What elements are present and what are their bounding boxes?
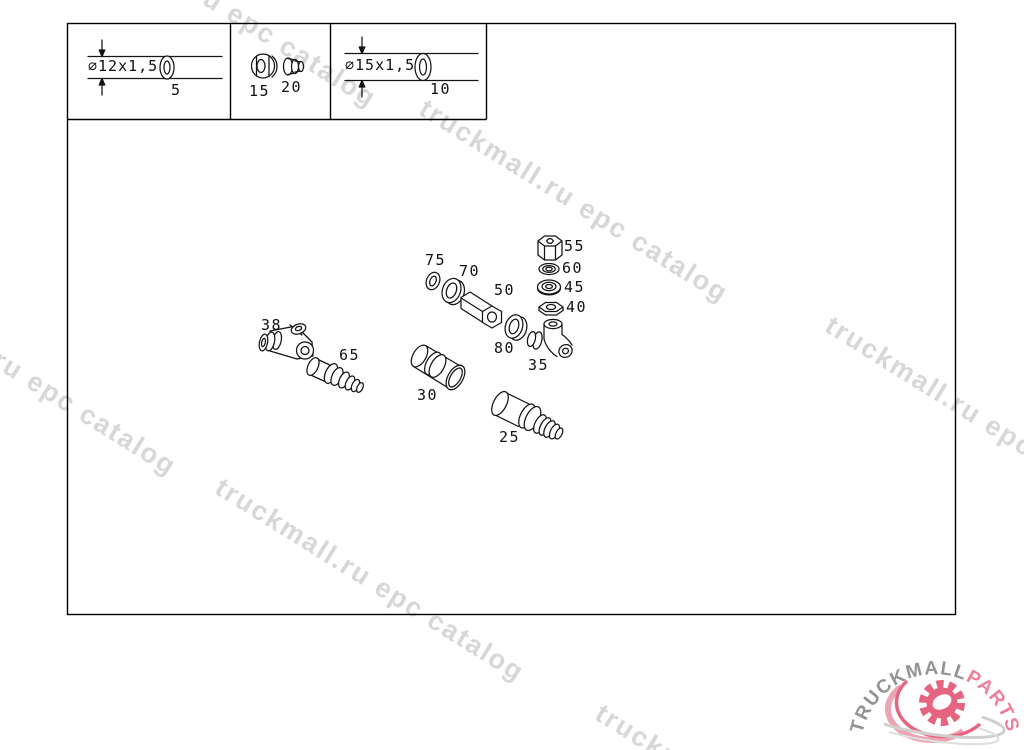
logo-text-parts: PARTS bbox=[963, 666, 1023, 735]
part-label-75: 75 bbox=[425, 253, 446, 268]
part-60-washer-drawing bbox=[539, 264, 559, 275]
part-label-55: 55 bbox=[564, 239, 585, 254]
part-40-nut-drawing bbox=[539, 303, 563, 316]
part-label-20: 20 bbox=[281, 80, 302, 95]
part-label-5: 5 bbox=[171, 83, 182, 98]
parts-diagram-page: truckmall.ru epc catalog truckmall.ru ep… bbox=[0, 0, 1024, 750]
diagram-line-art bbox=[0, 0, 1024, 750]
part-15-nut-drawing bbox=[252, 54, 278, 78]
part-45-seal-ring-drawing bbox=[538, 280, 561, 295]
part-label-38: 38 bbox=[261, 318, 282, 333]
part-label-15: 15 bbox=[249, 84, 270, 99]
dimension-12x1-5: ⌀12x1,5 bbox=[88, 59, 158, 74]
part-label-45: 45 bbox=[564, 280, 585, 295]
logo-gear-icon bbox=[923, 684, 961, 722]
part-20-plug-drawing bbox=[284, 58, 304, 75]
part-label-60: 60 bbox=[562, 261, 583, 276]
part-55-nut-drawing bbox=[538, 236, 562, 260]
part-label-50: 50 bbox=[494, 283, 515, 298]
part-label-80: 80 bbox=[494, 341, 515, 356]
part-75-ring-drawing bbox=[424, 270, 443, 292]
truckmall-parts-logo: TRUCKMALLPARTS bbox=[848, 648, 1024, 750]
part-label-25: 25 bbox=[499, 430, 520, 445]
part-label-35: 35 bbox=[528, 358, 549, 373]
dimension-15x1-5: ⌀15x1,5 bbox=[345, 58, 415, 73]
part-label-70: 70 bbox=[459, 264, 480, 279]
part-label-30: 30 bbox=[417, 388, 438, 403]
part-label-10: 10 bbox=[430, 82, 451, 97]
part-label-65: 65 bbox=[339, 348, 360, 363]
part-35-elbow-drawing bbox=[526, 319, 575, 360]
part-label-40: 40 bbox=[566, 300, 587, 315]
